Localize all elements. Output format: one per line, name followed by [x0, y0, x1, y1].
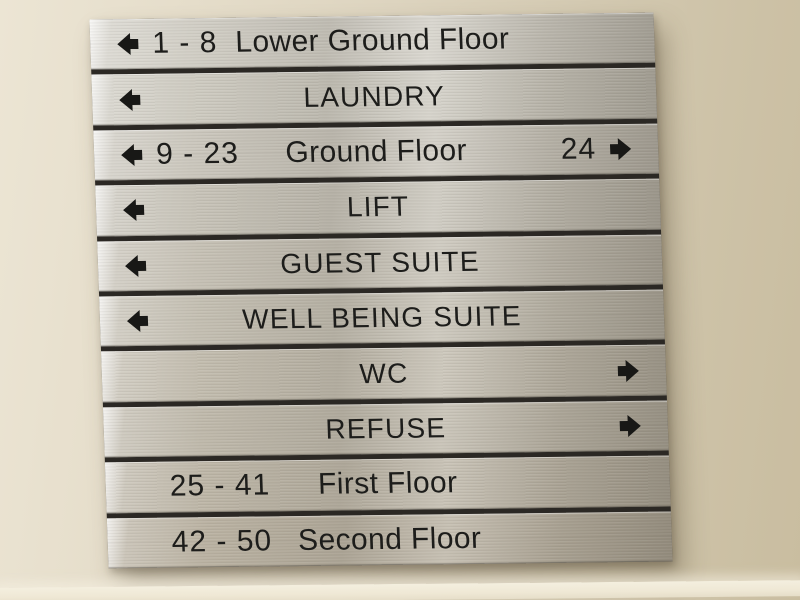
left-arrow-icon: [122, 197, 146, 223]
destination-label: GUEST SUITE: [97, 243, 662, 282]
unit-number-label: 24: [560, 132, 597, 166]
right-arrow-icon: [616, 357, 640, 383]
left-arrow-icon: [120, 142, 144, 168]
sign-row: 42 - 50 Second Floor: [107, 511, 673, 568]
destination-label: WC: [101, 354, 666, 393]
destination-label: LAUNDRY: [92, 77, 657, 116]
sign-row: LAUNDRY: [91, 68, 657, 125]
sign-row: WELL BEING SUITE: [99, 290, 665, 347]
left-arrow-icon: [124, 253, 148, 279]
sign-row: 25 - 41 First Floor: [105, 456, 671, 513]
baseboard-highlight: [0, 580, 800, 600]
left-arrow-icon: [116, 31, 140, 57]
sign-row: GUEST SUITE: [97, 234, 663, 291]
sign-row: WC: [101, 345, 667, 402]
unit-range-label: 25 - 41: [169, 469, 271, 504]
destination-label: WELL BEING SUITE: [99, 299, 664, 338]
unit-range-label: 9 - 23: [156, 137, 240, 172]
right-arrow-icon: [609, 136, 633, 162]
wall: 1 - 8 Lower Ground Floor LAUNDRY 9 - 23 …: [0, 0, 800, 600]
sign-row: LIFT: [95, 179, 661, 236]
right-arrow-icon: [618, 413, 642, 439]
destination-label: LIFT: [96, 188, 661, 227]
sign-row: REFUSE: [103, 400, 669, 457]
destination-label: REFUSE: [103, 410, 668, 449]
left-arrow-icon: [126, 308, 150, 334]
unit-range-label: 42 - 50: [171, 524, 273, 559]
sign-row: 9 - 23 Ground Floor 24: [93, 123, 659, 180]
directory-sign-panel: 1 - 8 Lower Ground Floor LAUNDRY 9 - 23 …: [89, 13, 672, 569]
sign-row: 1 - 8 Lower Ground Floor: [89, 13, 655, 70]
unit-range-label: 1 - 8: [152, 26, 218, 61]
left-arrow-icon: [118, 87, 142, 113]
